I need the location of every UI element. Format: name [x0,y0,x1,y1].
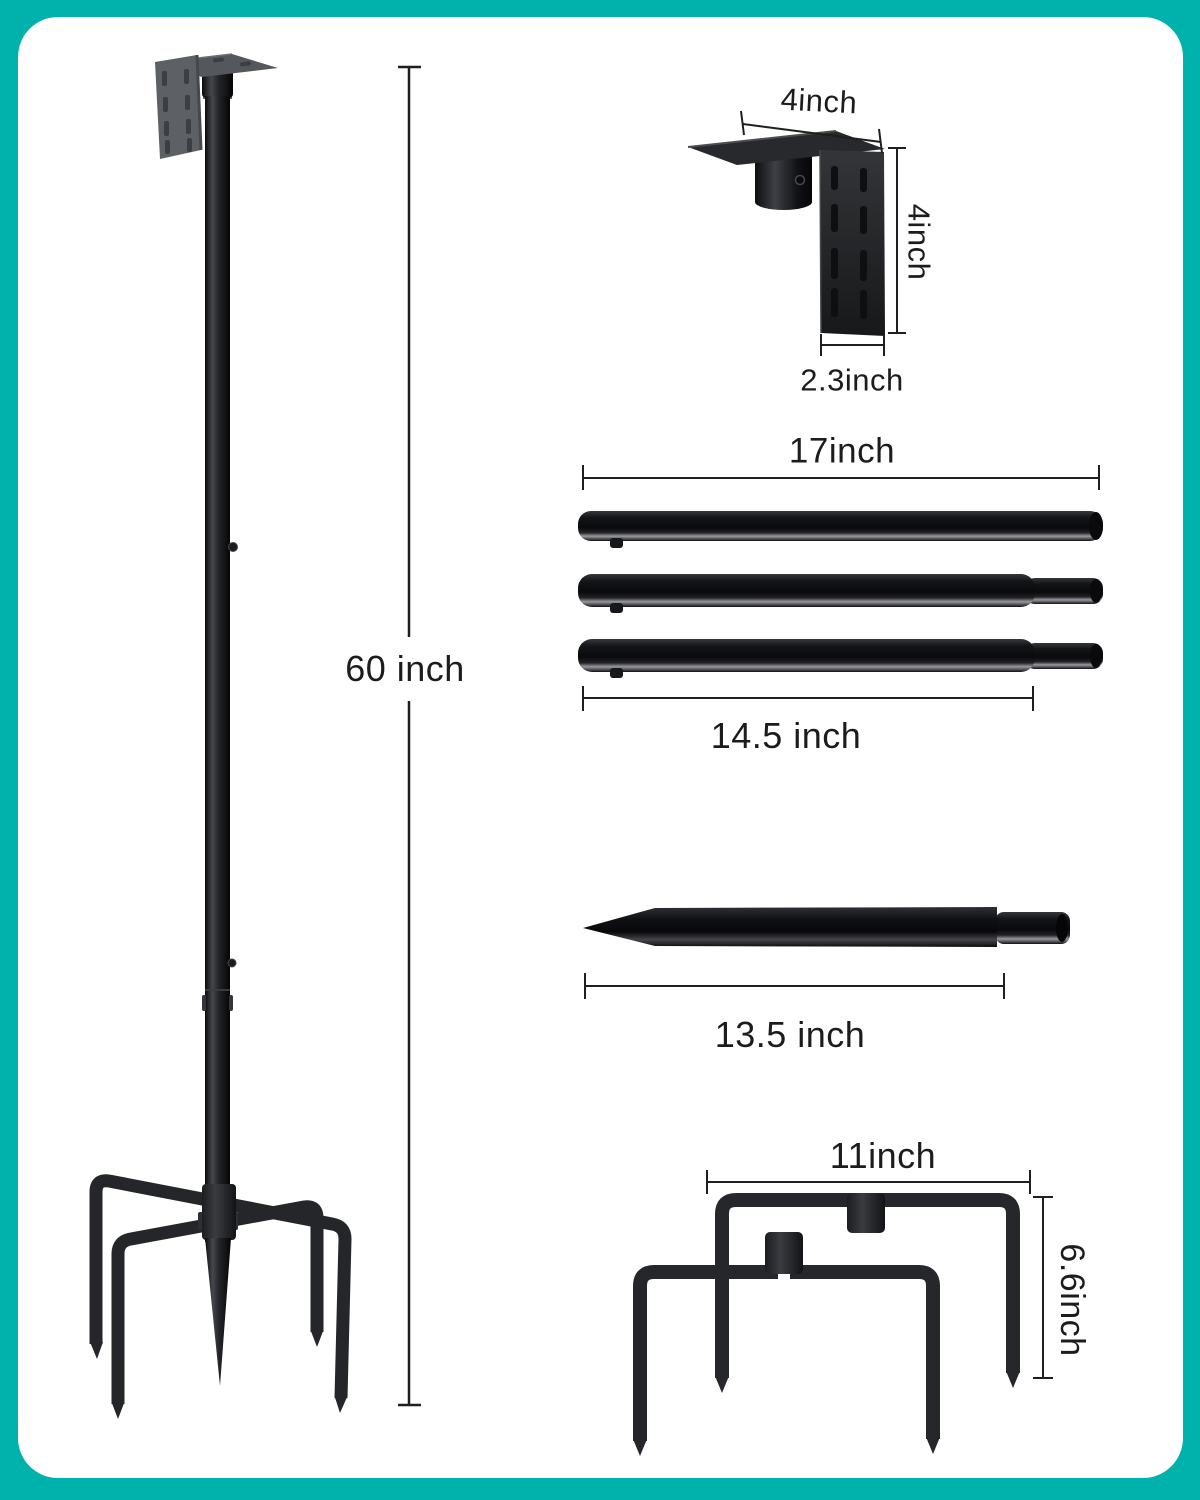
assembled-pole-illustration [90,54,348,1419]
pole-height-label: 60 inch [345,651,465,687]
pole-tube-3 [578,639,1103,678]
bracket-depth-label: 2.3inch [800,365,903,396]
base-height-label: 6.6inch [1055,1243,1089,1356]
tube-body-dimension-line [583,686,1033,711]
pole-tube-2 [578,574,1103,613]
bracket-depth-dimension-line [821,334,884,356]
tube-body-length-label: 14.5 inch [711,718,862,754]
base-height-dimension-line [1033,1197,1053,1378]
prong-base-illustration [633,1193,1020,1456]
bracket-width-label: 4inch [780,84,858,119]
pole-height-dimension-line [398,67,421,1405]
mounting-bracket-illustration [688,131,885,336]
tube-length-label: 17inch [789,434,895,469]
pole-tubes-illustration [578,511,1103,678]
spike-length-dimension-line [585,973,1004,999]
pole-tube-1 [578,511,1103,548]
product-illustrations [0,0,1200,1500]
base-width-label: 11inch [830,1138,936,1174]
ground-spike-illustration [583,907,1070,947]
bracket-height-label: 4inch [904,204,935,281]
product-dimension-figure: { "colors": { "bg": "#00b2ab", "panel": … [0,0,1200,1500]
spike-length-label: 13.5 inch [715,1017,866,1053]
